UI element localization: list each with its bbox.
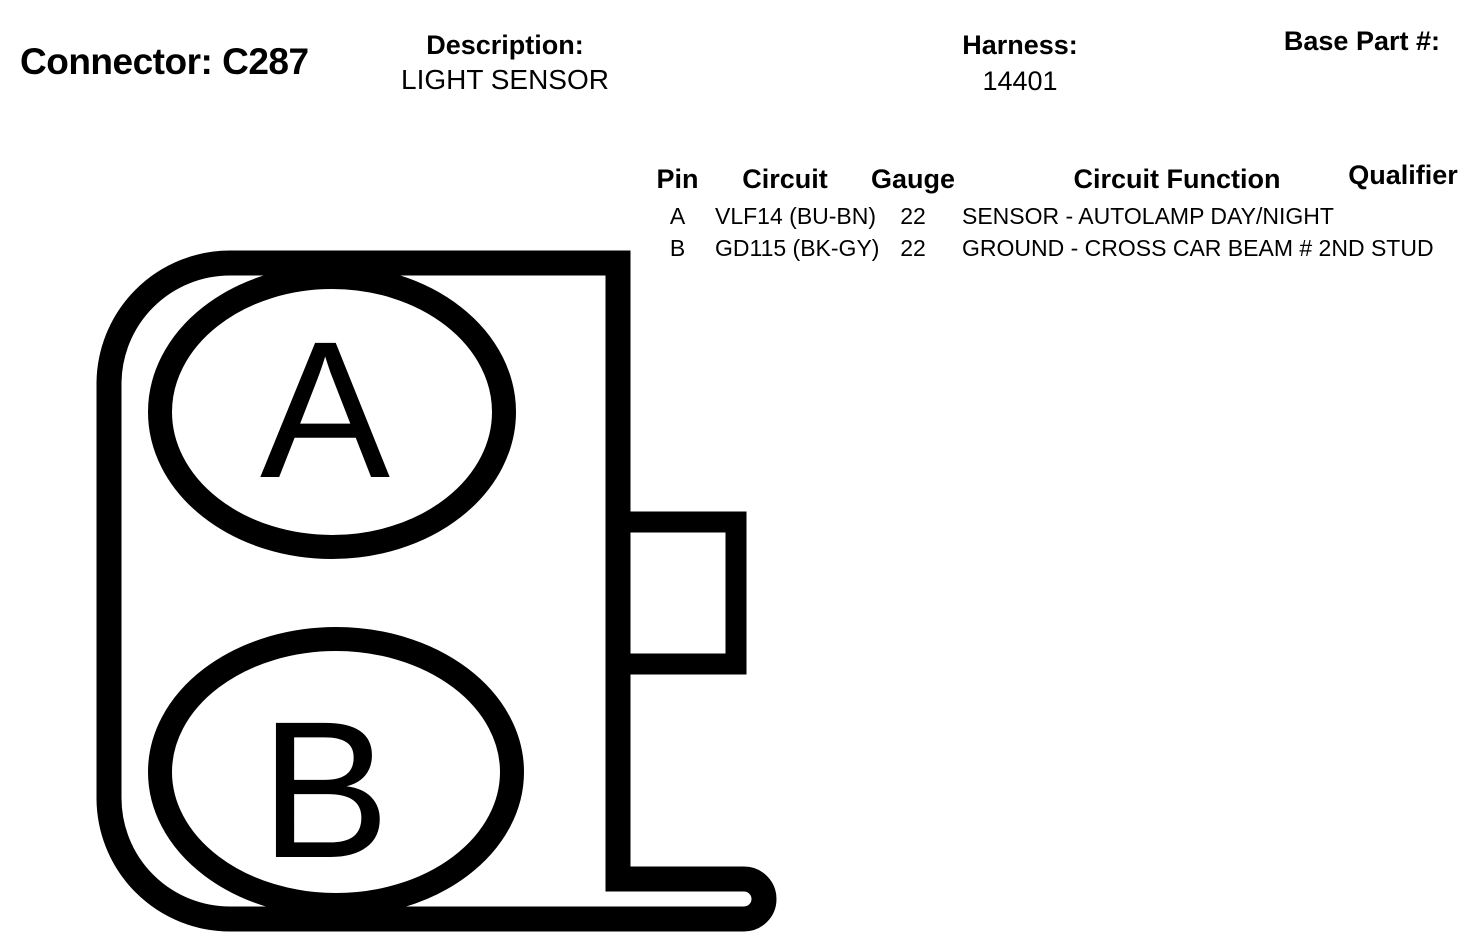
connector-diagram: A B xyxy=(0,0,1472,952)
locking-tab xyxy=(618,522,736,664)
connector-body-outline xyxy=(109,263,764,919)
pin-a-label: A xyxy=(260,301,390,519)
pin-b-label: B xyxy=(260,681,390,899)
